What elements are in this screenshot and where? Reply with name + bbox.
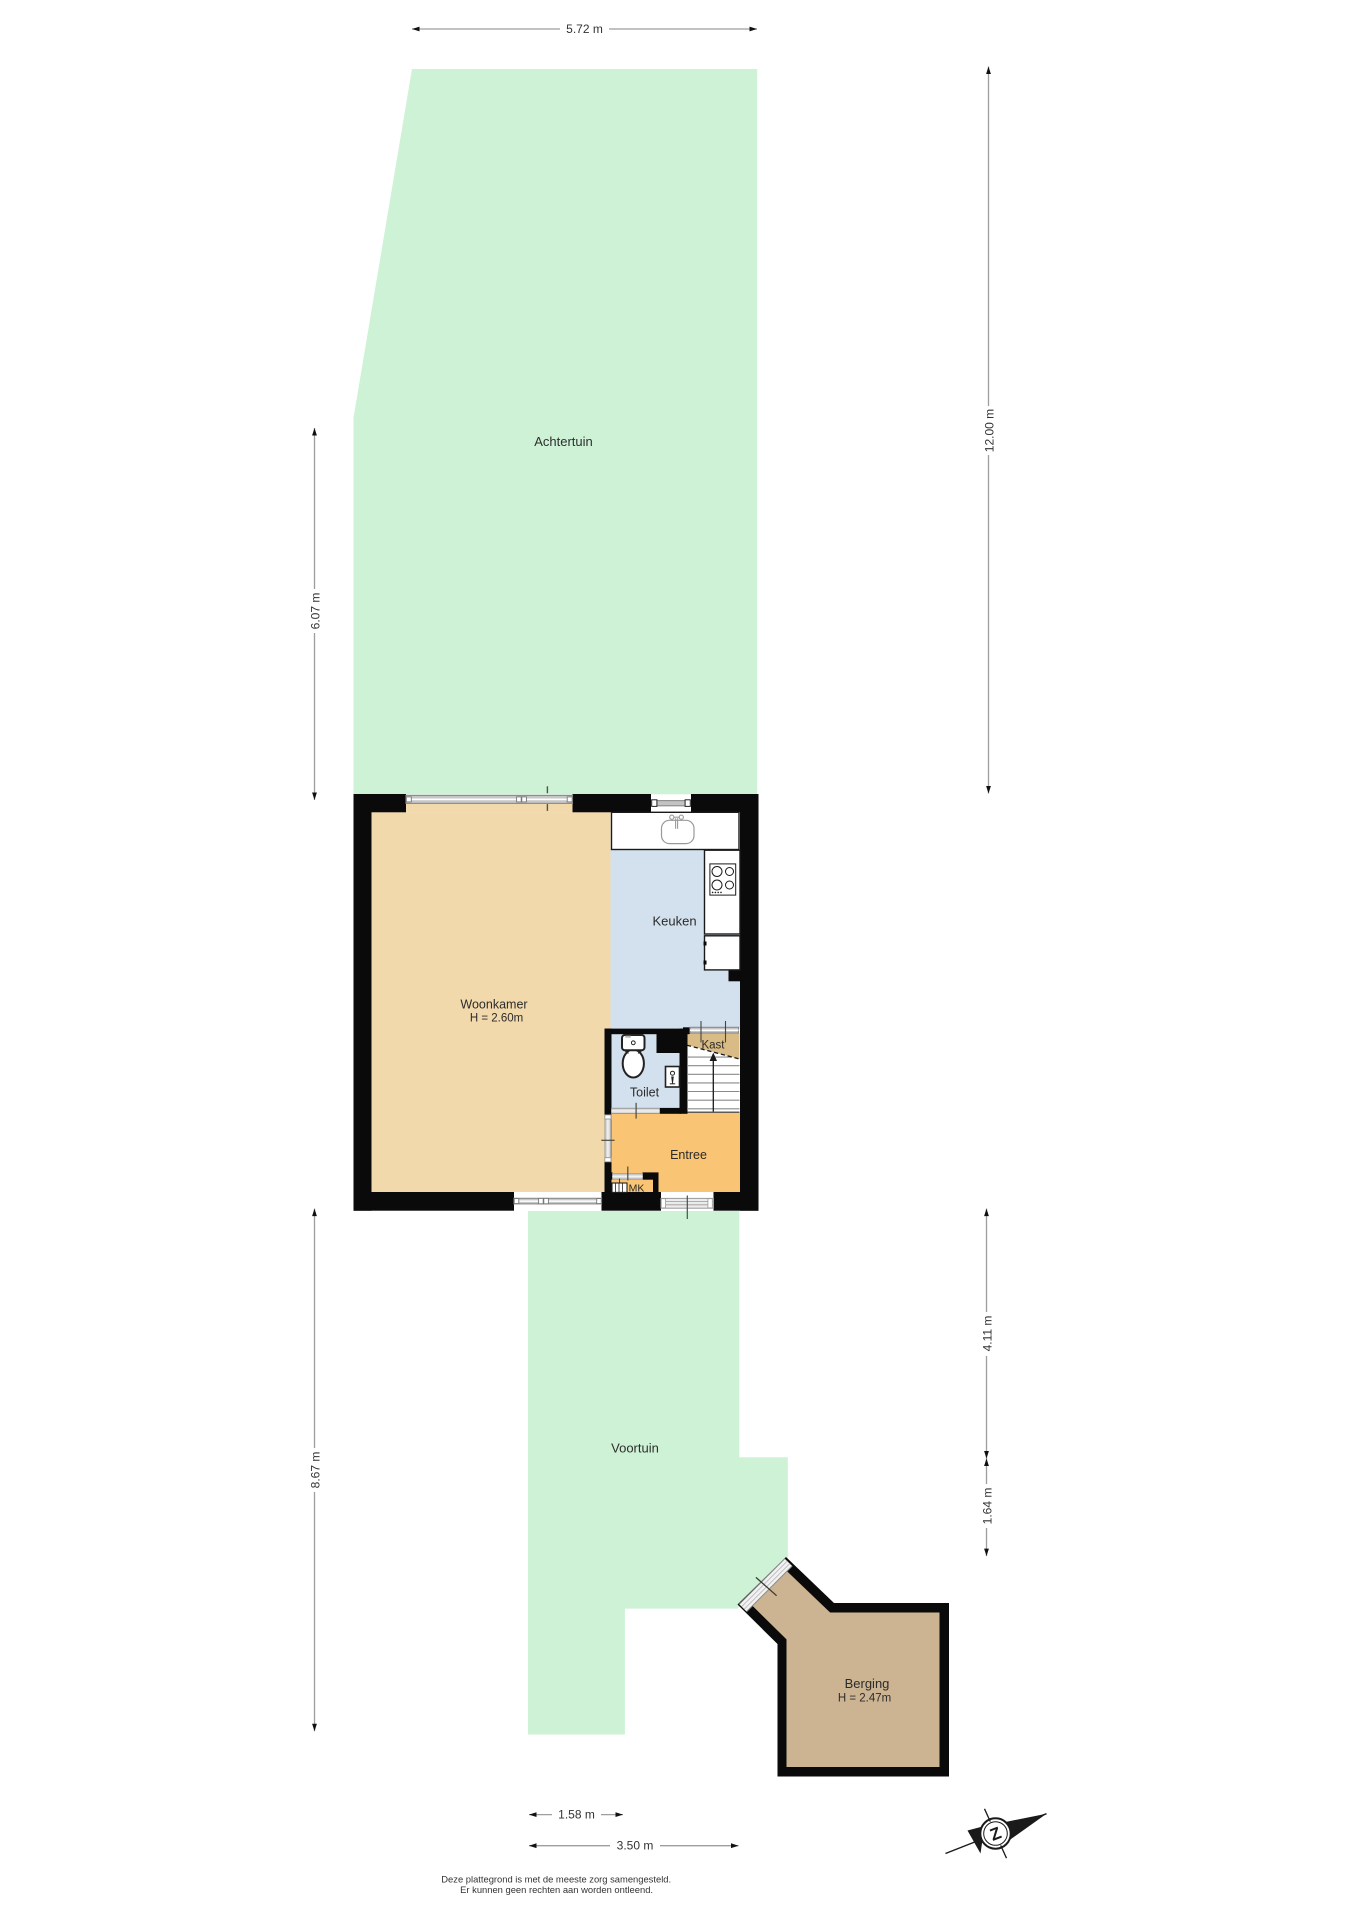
svg-text:8.67 m: 8.67 m: [309, 1452, 323, 1489]
svg-text:Entree: Entree: [670, 1148, 707, 1162]
svg-text:Berging: Berging: [845, 1676, 890, 1691]
svg-text:3.50 m: 3.50 m: [617, 1839, 654, 1853]
svg-text:12.00 m: 12.00 m: [983, 409, 997, 452]
svg-text:Voortuin: Voortuin: [611, 1441, 659, 1456]
svg-text:Keuken: Keuken: [652, 914, 696, 929]
svg-text:1.58 m: 1.58 m: [558, 1807, 595, 1821]
svg-text:Achtertuin: Achtertuin: [534, 434, 593, 449]
svg-text:4.11 m: 4.11 m: [981, 1316, 995, 1352]
svg-text:Kast: Kast: [701, 1039, 725, 1051]
svg-text:MK: MK: [629, 1183, 645, 1195]
svg-text:Woonkamer: Woonkamer: [460, 998, 527, 1012]
svg-text:1.64 m: 1.64 m: [981, 1488, 995, 1525]
svg-text:Toilet: Toilet: [630, 1085, 660, 1099]
svg-text:H = 2.60m: H = 2.60m: [470, 1012, 523, 1024]
svg-text:H = 2.47m: H = 2.47m: [838, 1692, 891, 1704]
svg-text:Er kunnen geen rechten aan wor: Er kunnen geen rechten aan worden ontlee…: [460, 1884, 653, 1895]
svg-text:5.72 m: 5.72 m: [566, 22, 603, 36]
svg-text:6.07 m: 6.07 m: [309, 593, 323, 630]
